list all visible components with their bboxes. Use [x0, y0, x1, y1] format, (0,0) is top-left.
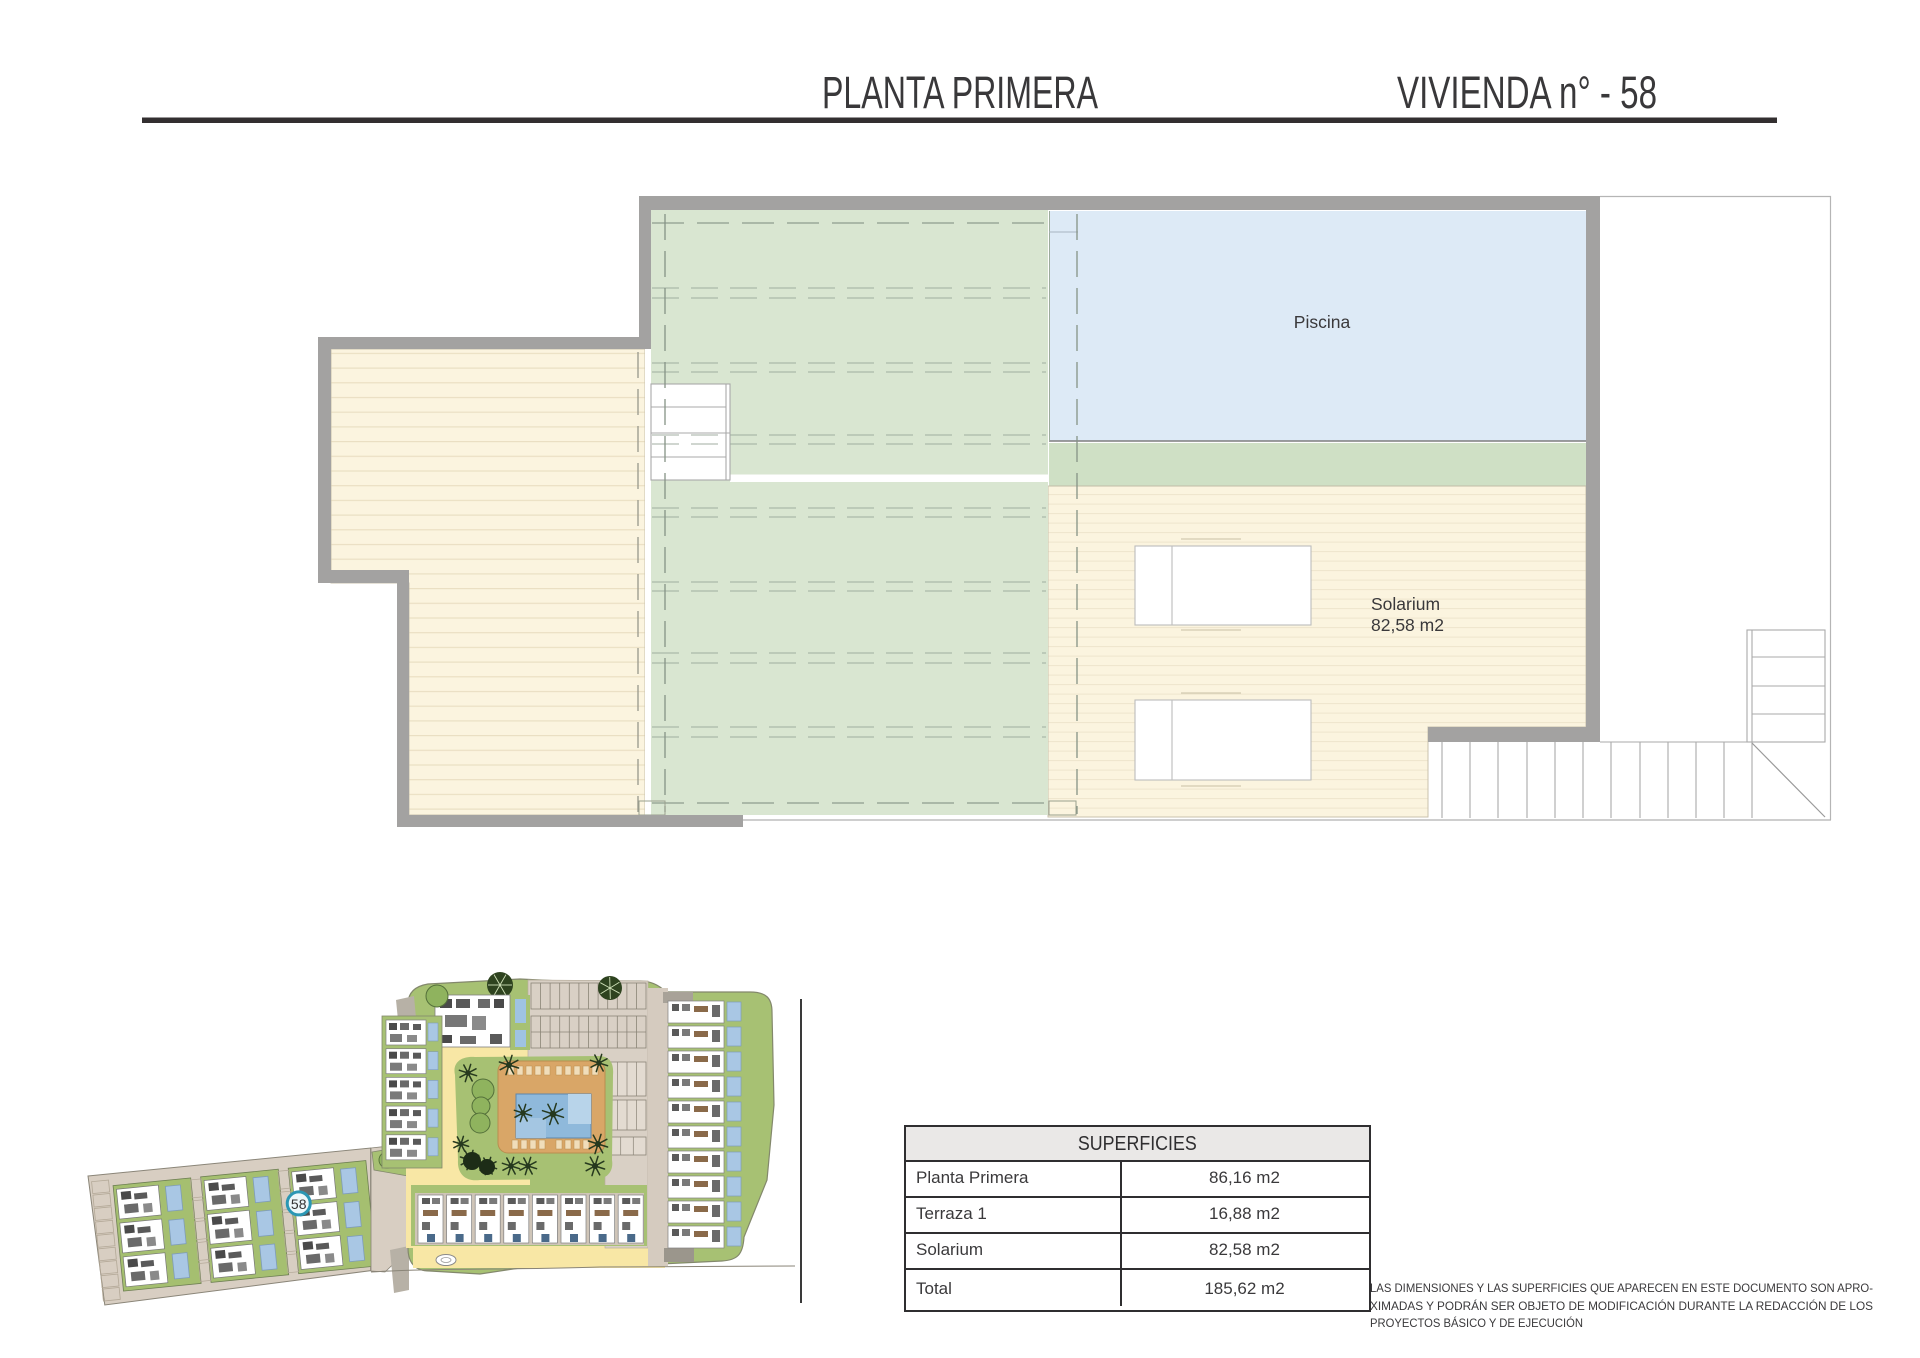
svg-text:58: 58	[291, 1196, 307, 1212]
